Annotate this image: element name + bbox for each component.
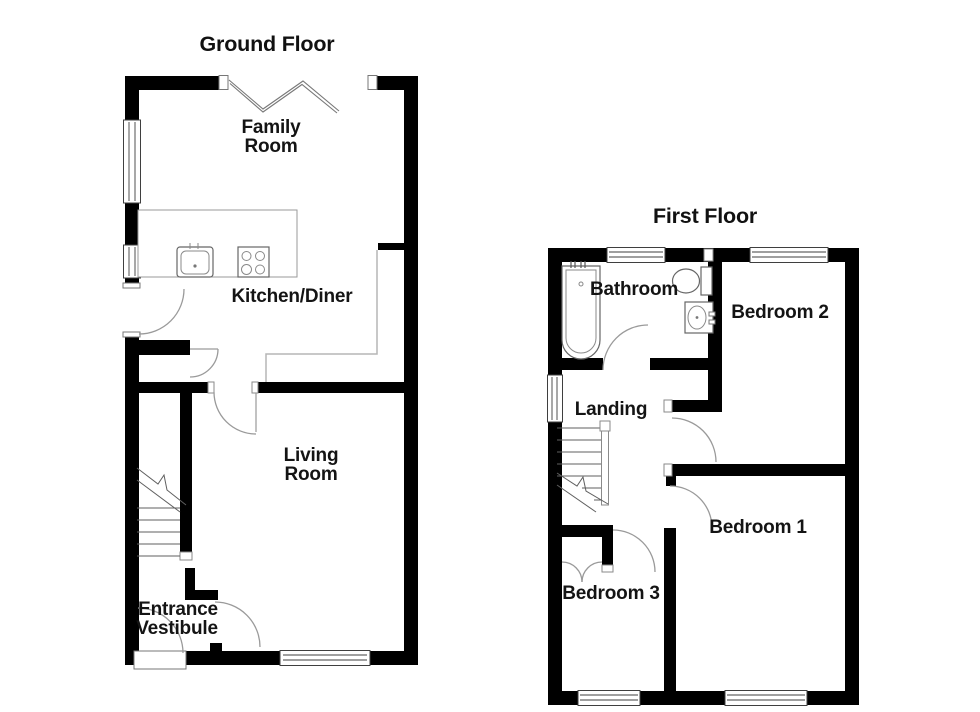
ground-floor-plan: Ground Floor — [123, 32, 418, 669]
window-landing — [548, 375, 563, 422]
room-label-kitchen-diner: Kitchen/Diner — [232, 286, 354, 307]
window-bathroom — [607, 248, 665, 263]
living-room-door — [214, 392, 256, 434]
bath-icon — [562, 261, 600, 359]
room-label-bedroom2: Bedroom 2 — [731, 302, 828, 323]
bifold-doors-icon — [219, 76, 377, 114]
wall-cap — [602, 565, 613, 572]
ground-floor-title: Ground Floor — [200, 32, 336, 56]
bedroom1-door — [670, 486, 712, 528]
window-bedroom3 — [578, 691, 640, 706]
basin-icon — [685, 302, 715, 333]
window-bedroom1 — [725, 691, 807, 706]
wall-cap — [664, 464, 672, 476]
bedroom3-door — [613, 530, 655, 572]
ground-floor-walls — [125, 76, 418, 665]
sink-icon — [177, 243, 213, 277]
kitchen-hall-door — [190, 349, 218, 377]
vestibule-door — [215, 602, 260, 647]
toilet-icon — [673, 267, 713, 295]
first-floor-staircase — [557, 421, 610, 512]
ground-staircase — [137, 468, 186, 556]
wall-cap — [252, 382, 258, 393]
wall-cap — [180, 552, 192, 560]
room-label-bedroom1: Bedroom 1 — [709, 517, 807, 538]
side-door — [123, 283, 184, 337]
room-label-entrance-line1: Entrance — [138, 599, 218, 620]
room-label-entrance-line2: Vestibule — [136, 618, 218, 639]
window-bedroom2 — [750, 248, 828, 263]
wall-cap — [664, 400, 672, 412]
room-label-family-room-line1: Family — [242, 117, 302, 138]
first-floor-title: First Floor — [653, 204, 758, 228]
kitchen-counter — [138, 210, 297, 277]
floorplan-canvas: Ground Floor — [0, 0, 980, 712]
room-label-bathroom: Bathroom — [590, 279, 678, 300]
room-label-bedroom3: Bedroom 3 — [562, 583, 659, 604]
window-kitchen-side-upper — [124, 120, 141, 203]
wall-cap — [208, 382, 214, 393]
room-label-landing: Landing — [575, 399, 647, 420]
room-label-living-room-line1: Living — [284, 445, 339, 466]
cupboard-double-doors — [562, 562, 602, 582]
first-floor-plan: First Floor — [548, 204, 860, 706]
bedroom2-door — [672, 418, 716, 462]
bathroom-door — [603, 325, 648, 370]
window-living-room — [280, 651, 370, 666]
room-label-family-room-line2: Room — [244, 136, 297, 157]
hob-icon — [238, 247, 269, 277]
wall-cap — [704, 249, 713, 261]
room-label-living-room-line2: Room — [284, 464, 337, 485]
